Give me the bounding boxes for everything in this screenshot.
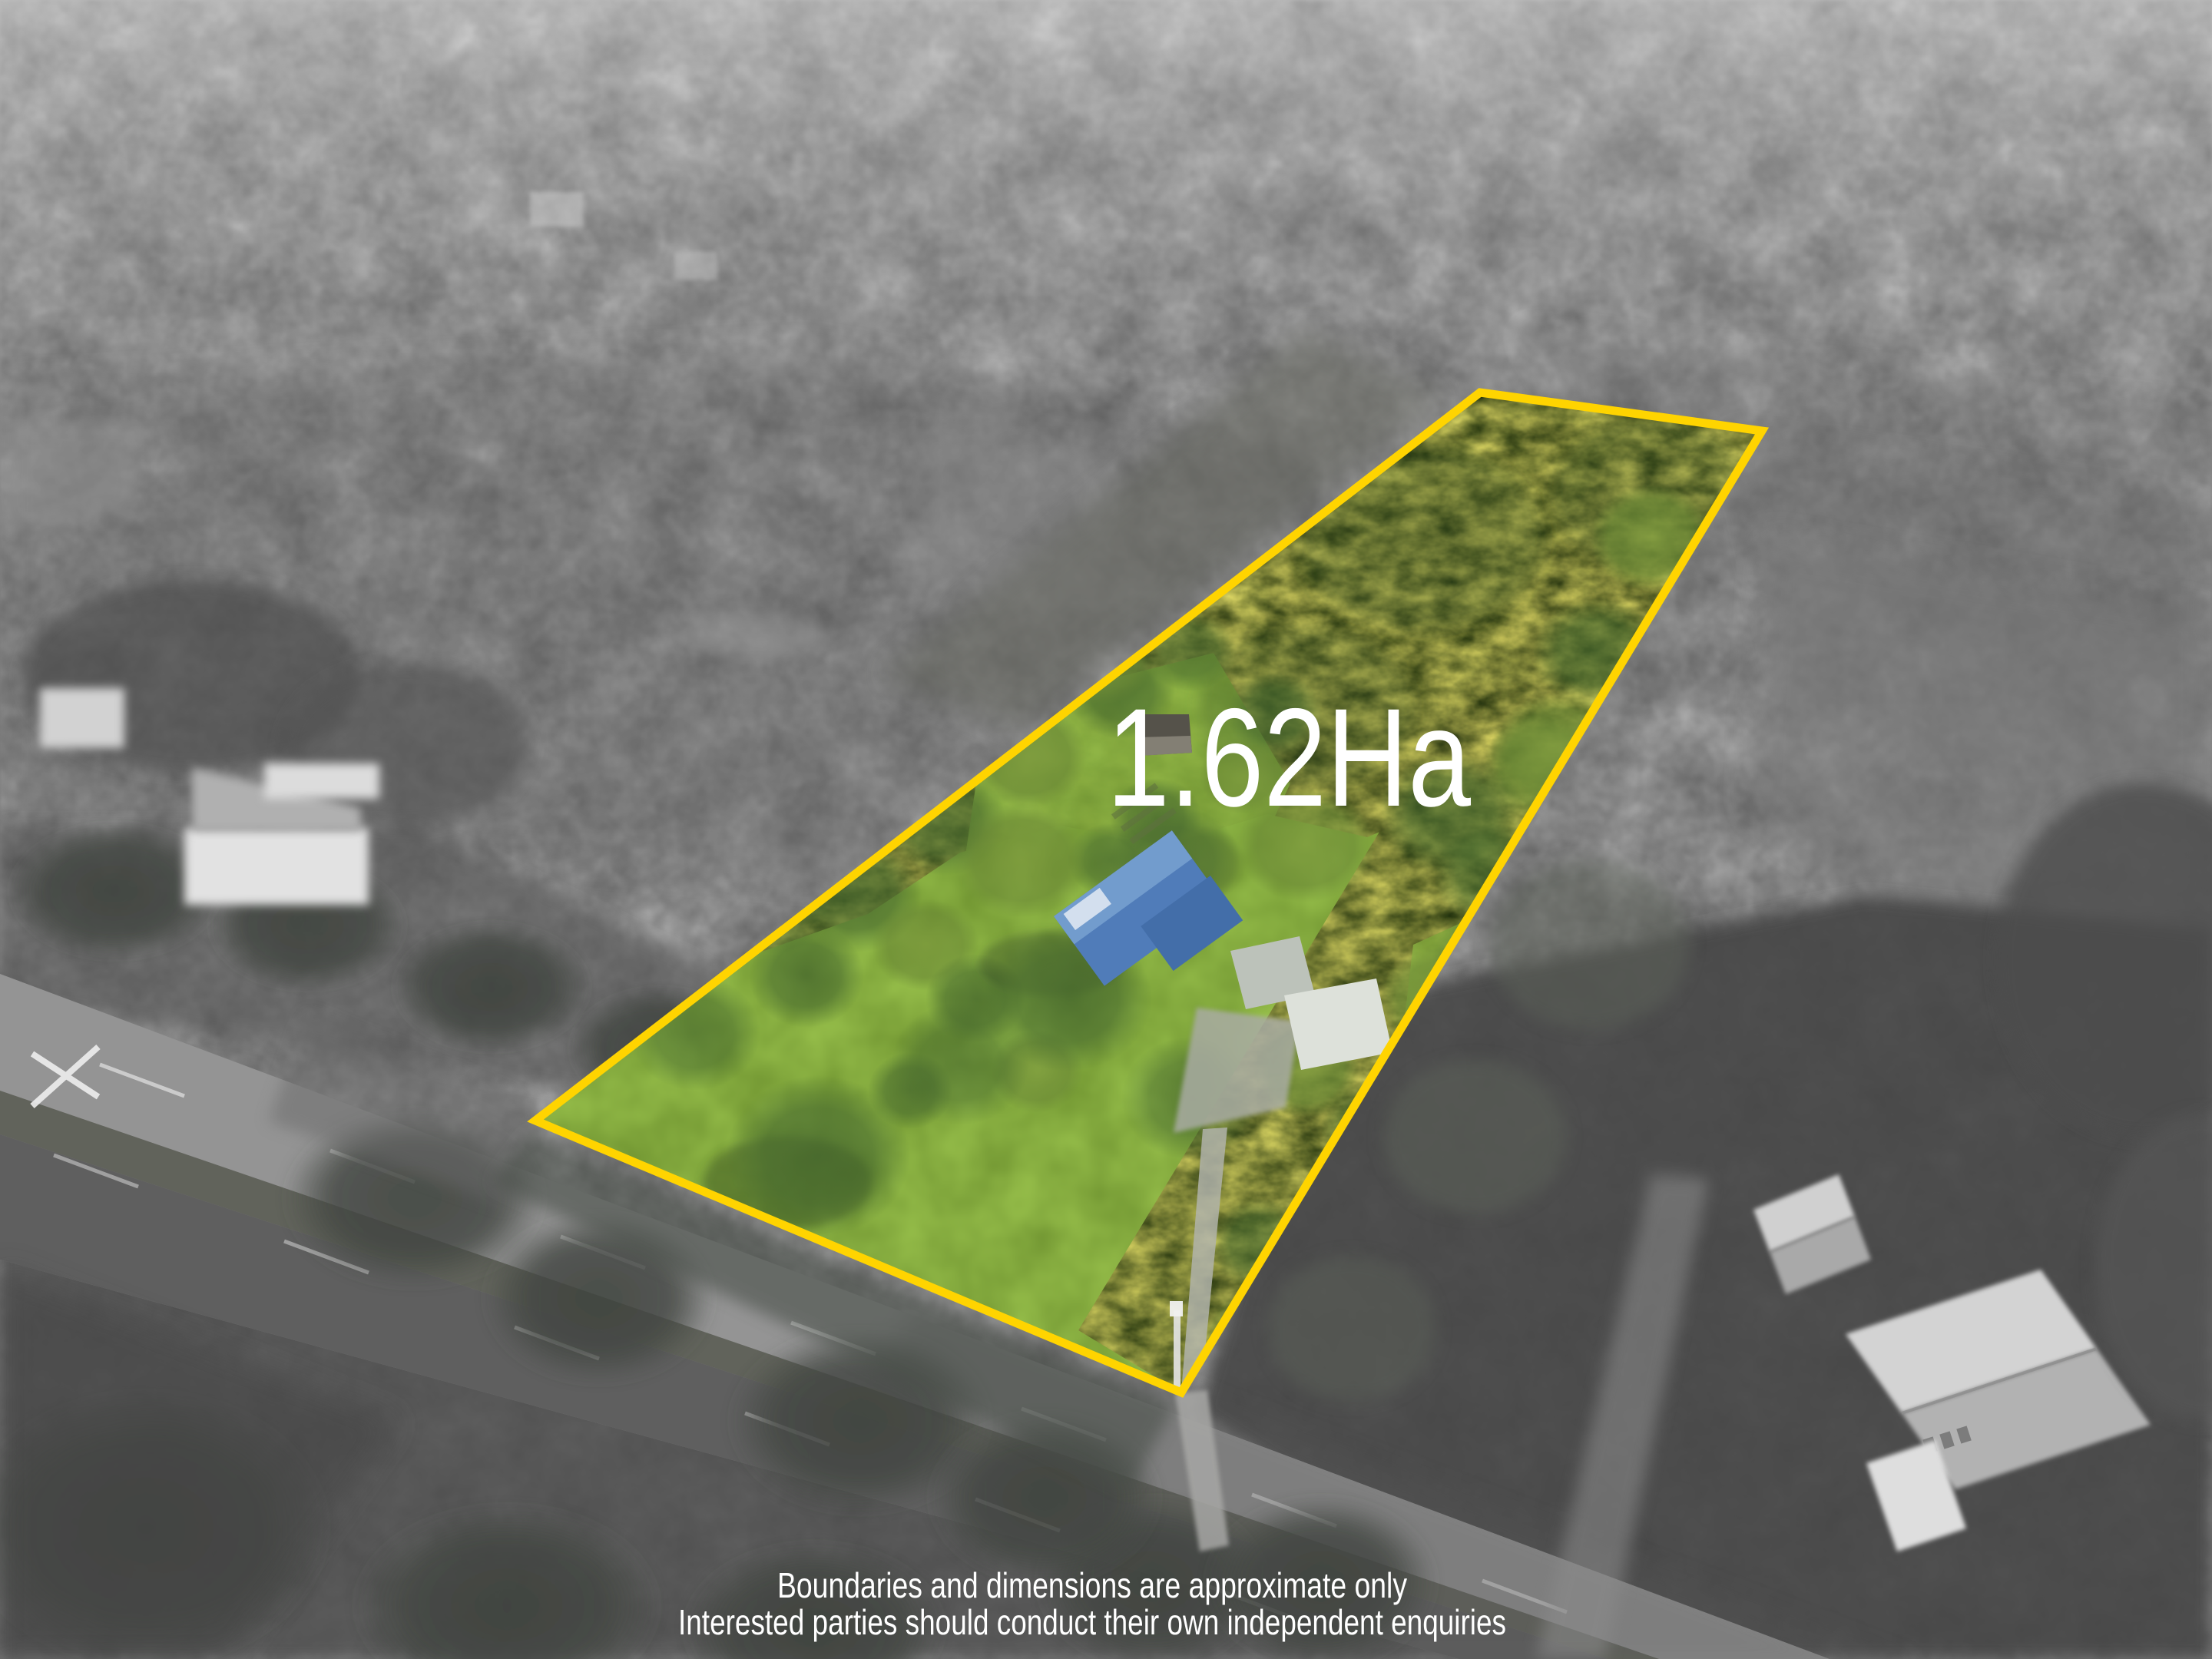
- svg-text:Boundaries and dimensions are: Boundaries and dimensions are approximat…: [777, 1565, 1407, 1605]
- svg-text:Interested parties should cond: Interested parties should conduct their …: [678, 1602, 1506, 1642]
- svg-text:1.62Ha: 1.62Ha: [1107, 679, 1472, 836]
